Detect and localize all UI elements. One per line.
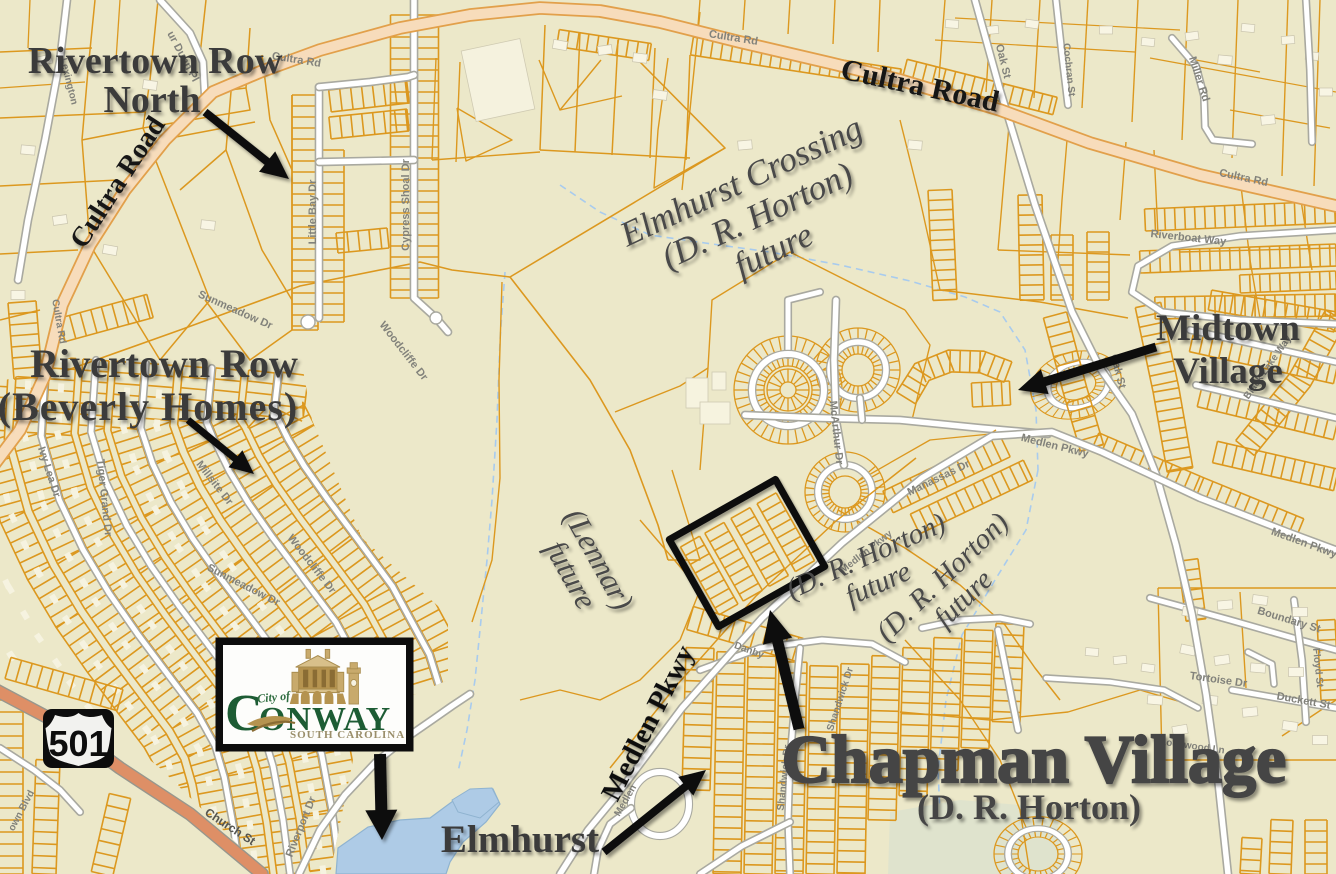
svg-text:Rivertown Row: Rivertown Row bbox=[28, 40, 283, 82]
svg-text:Midtown: Midtown bbox=[1156, 308, 1300, 349]
svg-text:Cypress Shoal Dr: Cypress Shoal Dr bbox=[400, 158, 412, 250]
svg-text:501: 501 bbox=[48, 723, 108, 764]
svg-text:Village: Village bbox=[1173, 351, 1283, 392]
svg-text:North: North bbox=[103, 79, 200, 121]
svg-text:SOUTH CAROLINA: SOUTH CAROLINA bbox=[290, 729, 405, 741]
svg-text:Elmhurst: Elmhurst bbox=[441, 818, 599, 861]
svg-text:Chapman Village: Chapman Village bbox=[782, 721, 1286, 797]
svg-text:Rivertown Row: Rivertown Row bbox=[30, 341, 298, 386]
svg-text:(Beverly Homes): (Beverly Homes) bbox=[0, 384, 298, 429]
svg-text:C: C bbox=[225, 685, 263, 742]
svg-text:(D. R. Horton): (D. R. Horton) bbox=[917, 787, 1141, 827]
svg-text:Little Bay Dr: Little Bay Dr bbox=[307, 179, 319, 245]
